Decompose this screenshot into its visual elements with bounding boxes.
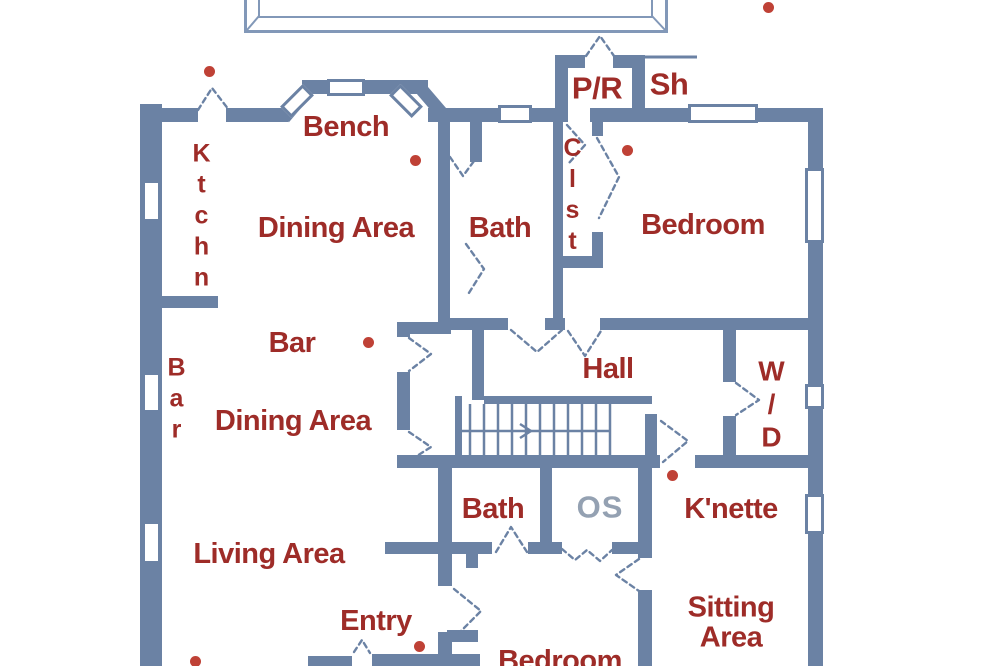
sitting-line2: Area — [700, 622, 763, 654]
door-swing — [409, 338, 431, 371]
sitting-line1: Sitting — [688, 592, 775, 624]
door-swing — [454, 589, 481, 633]
door-swing — [562, 549, 612, 561]
red-dot — [414, 641, 425, 652]
room-label-bedroom-lower: Bedroom — [498, 646, 622, 666]
door-swing — [511, 330, 562, 352]
red-dot — [622, 145, 633, 156]
room-label-bar-vertical: Bar — [164, 354, 189, 447]
room-label-bar: Bar — [269, 328, 316, 358]
window — [142, 372, 161, 413]
room-label-hall: Hall — [582, 354, 633, 384]
room-label-sitting-area: Sitting Area — [651, 593, 811, 654]
room-label-ktchn: Ktchn — [189, 140, 214, 295]
red-dot — [763, 2, 774, 13]
room-label-clst: Clst — [560, 134, 585, 258]
window — [142, 521, 161, 564]
deck-mitre — [247, 16, 666, 31]
red-dot — [363, 337, 374, 348]
door-swing — [450, 157, 474, 176]
door-swing — [198, 88, 229, 110]
red-dot — [667, 470, 678, 481]
door-swing — [354, 640, 370, 653]
plan-linework — [0, 0, 1000, 666]
room-label-knette: K'nette — [684, 494, 778, 524]
room-label-bench: Bench — [303, 112, 389, 142]
window — [805, 168, 824, 243]
window — [805, 494, 824, 534]
door-swing — [616, 559, 639, 591]
door-swing — [496, 527, 527, 552]
door-swing — [409, 432, 431, 461]
room-label-bedroom-upper: Bedroom — [641, 210, 765, 240]
door-swing — [466, 244, 484, 296]
door-swing — [661, 421, 688, 462]
room-label-bath-upper: Bath — [469, 213, 531, 243]
door-swing — [586, 36, 614, 56]
room-label-pr: P/R — [572, 73, 622, 106]
room-label-entry: Entry — [340, 606, 412, 636]
red-dot — [410, 155, 421, 166]
room-label-bath-lower: Bath — [462, 494, 524, 524]
door-swing — [597, 138, 619, 218]
red-dot — [190, 656, 201, 666]
room-label-wd: W/D — [757, 356, 785, 455]
room-label-dining-lower: Dining Area — [215, 406, 371, 436]
window — [805, 384, 824, 409]
floorplan-canvas: Bench Ktchn Dining Area Bath Clst Bedroo… — [0, 0, 1000, 666]
staircase — [458, 404, 610, 457]
room-label-living: Living Area — [193, 539, 344, 569]
room-label-sh: Sh — [650, 69, 689, 102]
window — [327, 79, 365, 96]
room-label-dining-upper: Dining Area — [258, 213, 414, 243]
window — [688, 104, 758, 123]
window — [142, 180, 161, 222]
red-dot — [204, 66, 215, 77]
room-label-os: OS — [577, 492, 624, 525]
window — [498, 105, 532, 123]
